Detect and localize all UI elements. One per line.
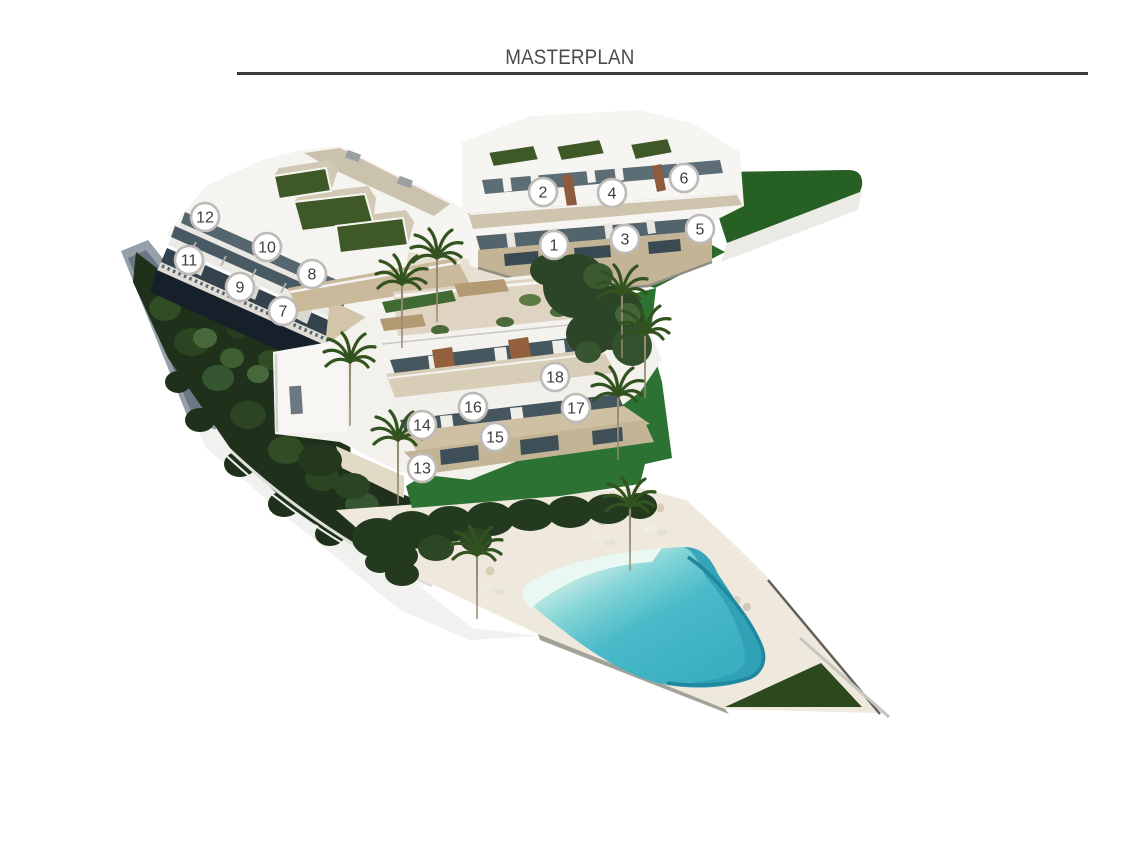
svg-text:3: 3 — [621, 232, 630, 249]
svg-text:18: 18 — [546, 370, 564, 387]
svg-text:2: 2 — [539, 185, 548, 202]
svg-text:14: 14 — [413, 418, 431, 435]
svg-text:4: 4 — [608, 186, 617, 203]
svg-text:9: 9 — [236, 280, 245, 297]
svg-text:10: 10 — [258, 240, 276, 257]
svg-text:5: 5 — [696, 222, 705, 239]
svg-text:13: 13 — [413, 461, 431, 478]
svg-text:12: 12 — [196, 210, 214, 227]
svg-text:17: 17 — [567, 401, 585, 418]
svg-text:8: 8 — [308, 267, 317, 284]
svg-text:6: 6 — [680, 171, 689, 188]
svg-text:11: 11 — [181, 253, 198, 270]
svg-text:16: 16 — [464, 400, 482, 417]
svg-text:1: 1 — [550, 238, 559, 255]
svg-text:7: 7 — [279, 304, 288, 321]
svg-text:15: 15 — [486, 430, 504, 447]
